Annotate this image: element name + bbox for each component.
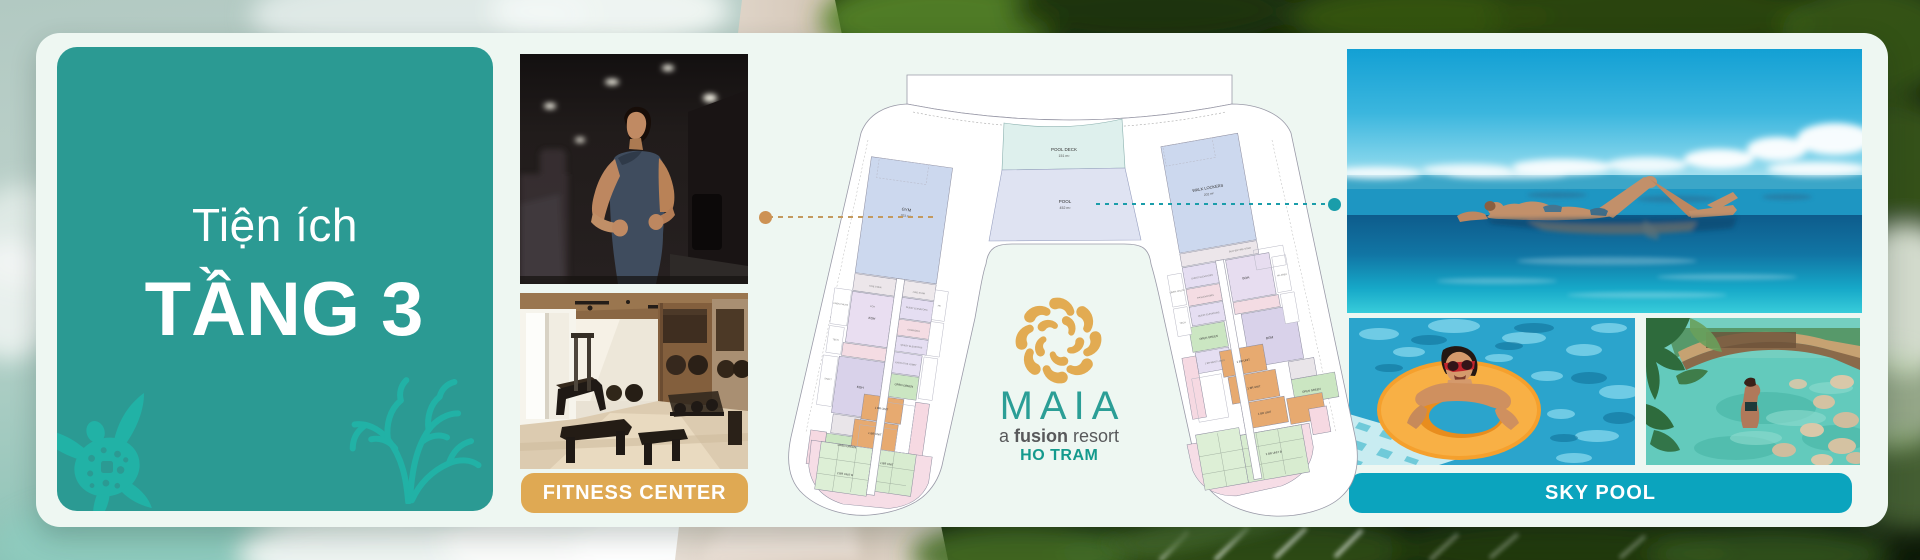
svg-text:POOL: POOL <box>1059 199 1072 204</box>
svg-text:452 m²: 452 m² <box>1060 206 1072 210</box>
svg-text:151 m²: 151 m² <box>1059 154 1071 158</box>
svg-text:POOL DECK: POOL DECK <box>1051 147 1077 152</box>
